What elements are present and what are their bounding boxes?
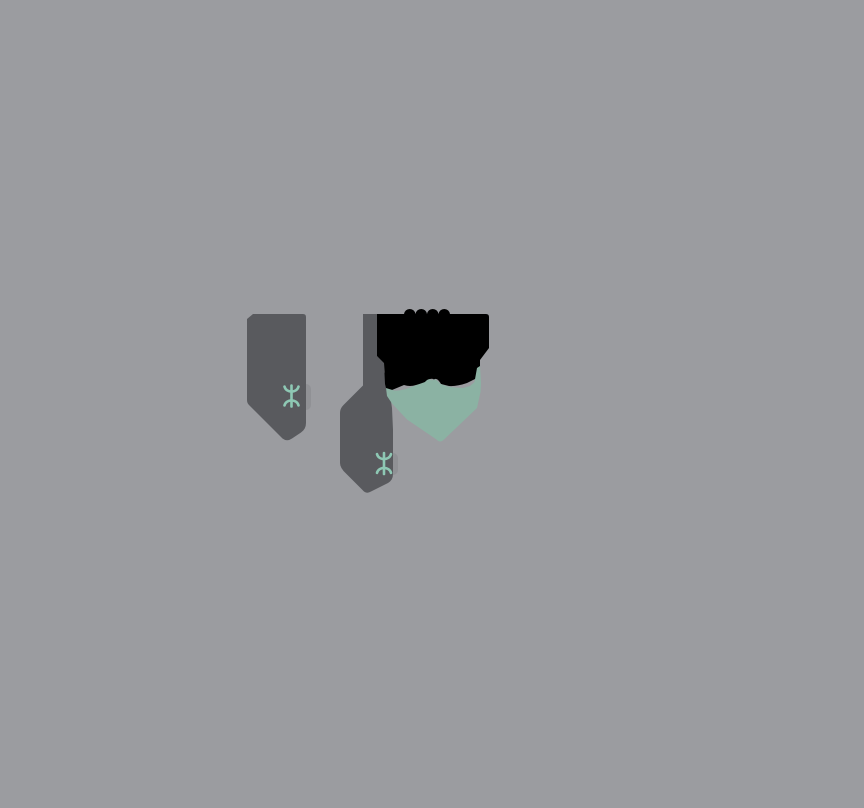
scene-canvas — [0, 0, 864, 808]
game-scene — [0, 0, 864, 808]
page-body: { "scene": { "width": 864, "height": 808… — [0, 0, 864, 808]
